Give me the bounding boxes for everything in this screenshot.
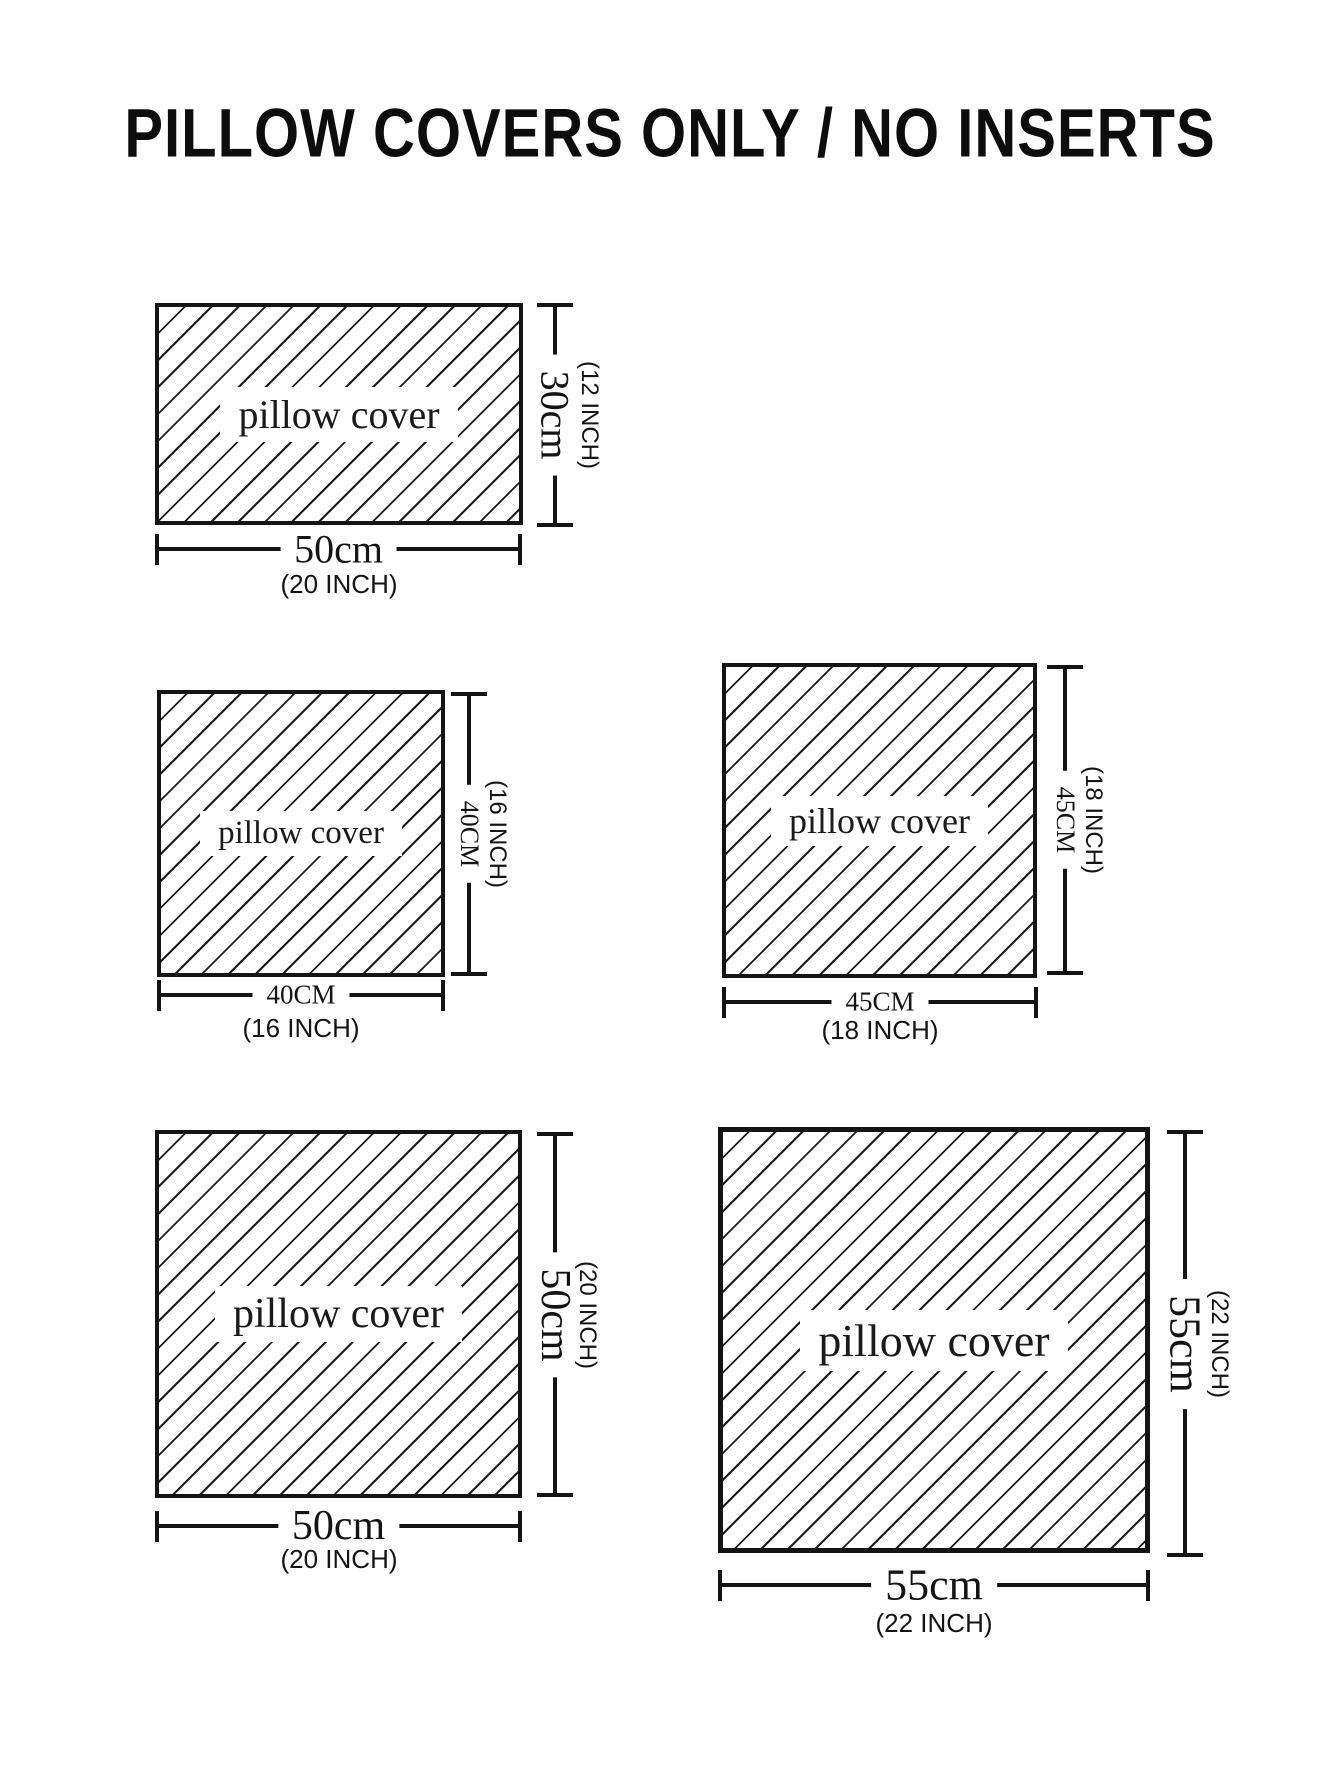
- dimension-cap: [1034, 987, 1038, 1018]
- height-inch-label: (20 INCH): [573, 1260, 601, 1368]
- width-cm-label: 50cm: [280, 526, 397, 573]
- dimension-cap: [722, 987, 726, 1018]
- dimension-cap: [1047, 665, 1083, 669]
- width-inch-label: (16 INCH): [242, 1013, 359, 1044]
- dimension-cap: [537, 1493, 573, 1497]
- width-cm-label: 55cm: [871, 1560, 997, 1611]
- height-cm-label: 45CM: [1050, 771, 1080, 869]
- height-cm-label: 30cm: [532, 355, 579, 476]
- dimension-cap: [451, 692, 487, 696]
- height-cm-label: 50cm: [531, 1252, 579, 1377]
- dimension-cap: [1047, 971, 1083, 975]
- height-cm-label: 55cm: [1160, 1279, 1211, 1409]
- dimension-cap: [518, 1511, 522, 1542]
- height-inch-label: (18 INCH): [1079, 766, 1107, 874]
- width-cm-label: 50cm: [278, 1502, 399, 1550]
- dimension-cap: [441, 980, 445, 1011]
- page-title: PILLOW COVERS ONLY / NO INSERTS: [124, 94, 1215, 173]
- width-inch-label: (20 INCH): [280, 1544, 397, 1575]
- pillow-cover-label: pillow cover: [800, 1310, 1067, 1371]
- dimension-cap: [537, 523, 573, 527]
- dimension-cap: [155, 534, 159, 565]
- pillow-swatch: pillow cover: [718, 1127, 1150, 1553]
- dimension-cap: [537, 303, 573, 307]
- pillow-cover-label: pillow cover: [215, 1286, 462, 1342]
- pillow-cover-label: pillow cover: [771, 796, 988, 846]
- pillow-swatch: pillow cover: [155, 1130, 522, 1498]
- pillow-swatch: pillow cover: [722, 663, 1037, 978]
- dimension-cap: [1167, 1553, 1203, 1557]
- height-inch-label: (12 INCH): [575, 361, 603, 469]
- dimension-cap: [518, 534, 522, 565]
- width-cm-label: 45CM: [831, 987, 928, 1018]
- dimension-cap: [1167, 1130, 1203, 1134]
- width-cm-label: 40CM: [252, 980, 349, 1011]
- dimension-cap: [451, 972, 487, 976]
- height-inch-label: (22 INCH): [1205, 1289, 1233, 1397]
- height-inch-label: (16 INCH): [483, 780, 511, 888]
- size-diagram-canvas: PILLOW COVERS ONLY / NO INSERTS pillow c…: [0, 0, 1340, 1785]
- width-inch-label: (20 INCH): [280, 569, 397, 600]
- height-cm-label: 40CM: [454, 785, 484, 883]
- dimension-cap: [537, 1132, 573, 1136]
- pillow-swatch: pillow cover: [155, 303, 523, 525]
- pillow-cover-label: pillow cover: [220, 387, 457, 442]
- width-inch-label: (22 INCH): [875, 1608, 992, 1639]
- dimension-cap: [1146, 1570, 1150, 1601]
- pillow-swatch: pillow cover: [157, 690, 445, 977]
- dimension-cap: [155, 1511, 159, 1542]
- dimension-cap: [157, 980, 161, 1011]
- width-inch-label: (18 INCH): [821, 1015, 938, 1046]
- pillow-cover-label: pillow cover: [200, 811, 402, 856]
- dimension-cap: [718, 1570, 722, 1601]
